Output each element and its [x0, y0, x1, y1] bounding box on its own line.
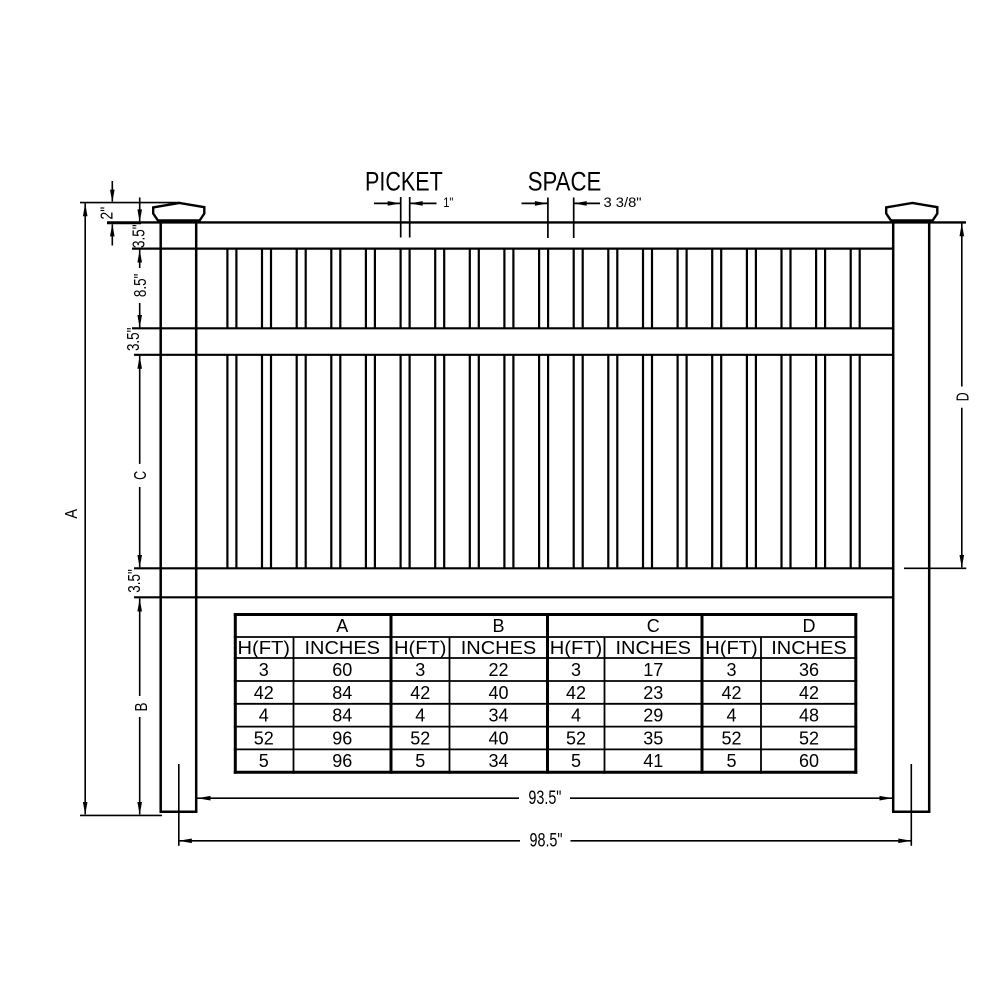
svg-text:40: 40 — [488, 728, 508, 748]
svg-text:D: D — [803, 616, 816, 636]
svg-text:2": 2" — [97, 207, 117, 220]
svg-text:29: 29 — [643, 706, 663, 726]
svg-text:INCHES: INCHES — [461, 638, 537, 658]
svg-text:3.5": 3.5" — [123, 328, 143, 352]
svg-text:52: 52 — [254, 728, 274, 748]
svg-text:35: 35 — [643, 728, 663, 748]
svg-text:3: 3 — [259, 660, 269, 680]
svg-text:17: 17 — [643, 660, 663, 680]
svg-text:52: 52 — [566, 728, 586, 748]
svg-text:23: 23 — [643, 683, 663, 703]
svg-text:52: 52 — [410, 728, 430, 748]
svg-text:42: 42 — [799, 683, 819, 703]
svg-text:C: C — [647, 616, 660, 636]
svg-text:42: 42 — [410, 683, 430, 703]
svg-text:INCHES: INCHES — [616, 638, 692, 658]
svg-text:34: 34 — [488, 706, 508, 726]
svg-text:60: 60 — [332, 660, 352, 680]
svg-text:4: 4 — [726, 706, 736, 726]
svg-text:8.5": 8.5" — [130, 274, 150, 298]
svg-text:3: 3 — [415, 660, 425, 680]
svg-text:1": 1" — [443, 195, 453, 210]
svg-text:D: D — [952, 393, 972, 402]
svg-text:3: 3 — [571, 660, 581, 680]
svg-text:C: C — [130, 471, 150, 480]
svg-text:5: 5 — [571, 751, 581, 771]
svg-text:3.5": 3.5" — [124, 569, 144, 593]
svg-text:5: 5 — [415, 751, 425, 771]
svg-text:3 3/8": 3 3/8" — [604, 195, 642, 210]
svg-text:INCHES: INCHES — [305, 638, 381, 658]
svg-text:H(FT): H(FT) — [238, 638, 291, 658]
svg-text:A: A — [61, 509, 81, 519]
svg-text:3.5": 3.5" — [128, 224, 148, 248]
svg-text:4: 4 — [259, 706, 269, 726]
svg-text:36: 36 — [799, 660, 819, 680]
svg-text:H(FT): H(FT) — [394, 638, 447, 658]
svg-text:22: 22 — [488, 660, 508, 680]
svg-text:42: 42 — [254, 683, 274, 703]
svg-text:SPACE: SPACE — [528, 166, 602, 196]
svg-text:A: A — [336, 616, 348, 636]
svg-text:H(FT): H(FT) — [705, 638, 758, 658]
svg-text:98.5": 98.5" — [530, 830, 563, 852]
svg-text:H(FT): H(FT) — [550, 638, 603, 658]
svg-text:PICKET: PICKET — [365, 166, 443, 196]
svg-text:4: 4 — [415, 706, 425, 726]
svg-text:96: 96 — [332, 728, 352, 748]
svg-text:84: 84 — [332, 706, 352, 726]
svg-text:96: 96 — [332, 751, 352, 771]
svg-text:41: 41 — [643, 751, 663, 771]
svg-text:42: 42 — [566, 683, 586, 703]
svg-text:4: 4 — [571, 706, 581, 726]
svg-text:93.5": 93.5" — [528, 787, 561, 809]
svg-text:34: 34 — [488, 751, 508, 771]
svg-text:B: B — [492, 616, 504, 636]
svg-text:5: 5 — [259, 751, 269, 771]
svg-text:3: 3 — [726, 660, 736, 680]
svg-text:84: 84 — [332, 683, 352, 703]
svg-text:INCHES: INCHES — [771, 638, 847, 658]
svg-text:5: 5 — [726, 751, 736, 771]
svg-text:52: 52 — [721, 728, 741, 748]
svg-text:40: 40 — [488, 683, 508, 703]
svg-text:60: 60 — [799, 751, 819, 771]
svg-text:52: 52 — [799, 728, 819, 748]
svg-text:48: 48 — [799, 706, 819, 726]
svg-text:B: B — [131, 703, 151, 712]
svg-text:42: 42 — [721, 683, 741, 703]
